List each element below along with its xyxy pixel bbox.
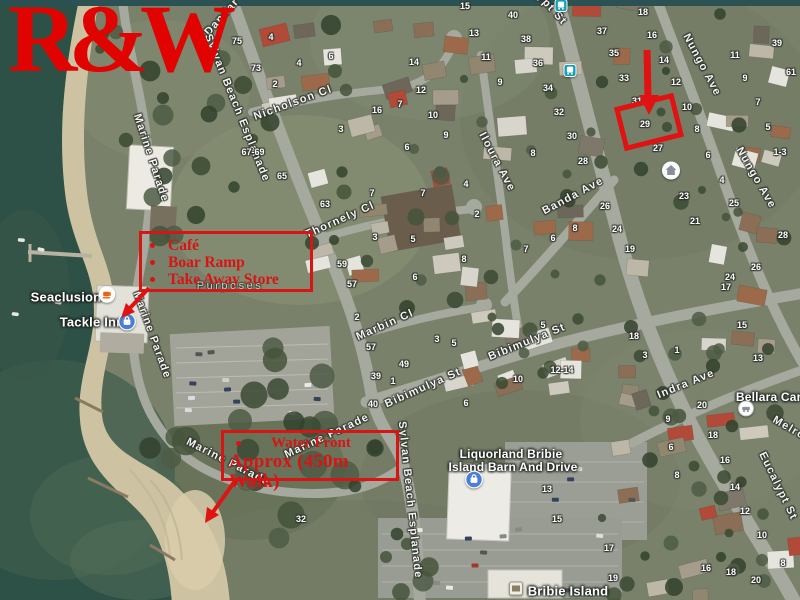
bullet-icon — [150, 260, 155, 265]
poi-annotation-label: Take Away Store — [168, 271, 279, 289]
poi-annotation-row: Café — [147, 237, 310, 254]
bullet-icon — [150, 243, 155, 248]
poi-annotation-label: Boar Ramp — [168, 254, 245, 272]
listing-map-image: DandarSylvan Beach EsplanadeMarine Parad… — [0, 0, 800, 600]
walk-annotation-label: Water Front — [271, 435, 351, 452]
agency-logo: R&W — [8, 0, 227, 92]
walk-annotation-row: Water Front — [233, 435, 396, 452]
poi-annotation-label: Café — [168, 237, 199, 255]
bullet-icon — [236, 441, 241, 446]
poi-annotation-box: Café Boar Ramp Take Away Store — [139, 231, 313, 292]
walk-annotation-box: Water Front Approx (450m Walk) — [221, 430, 399, 481]
walk-annotation-label: Approx (450m Walk) — [229, 452, 396, 492]
poi-annotation-row: Boar Ramp — [147, 254, 310, 271]
bullet-icon — [150, 277, 155, 282]
poi-annotation-row: Take Away Store — [147, 271, 310, 288]
